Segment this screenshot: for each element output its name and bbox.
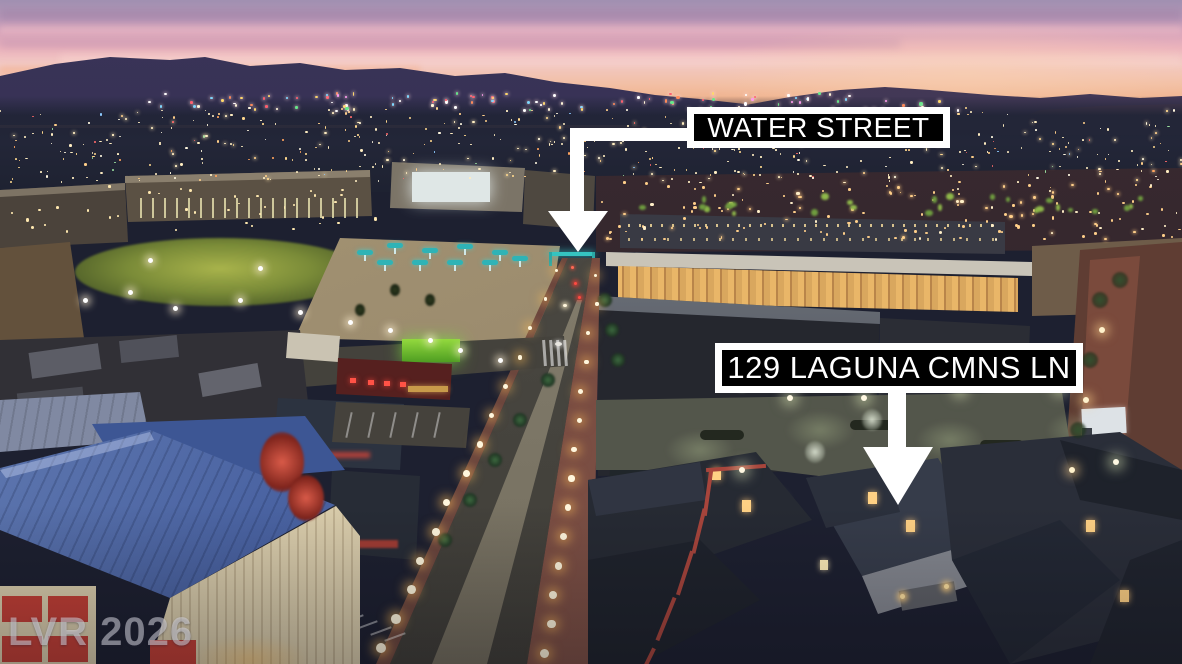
distant-light — [242, 117, 244, 119]
distant-light — [84, 163, 87, 165]
strip-light — [193, 105, 196, 108]
distant-light — [1068, 174, 1070, 175]
distant-light — [69, 144, 72, 147]
distant-light — [1036, 177, 1039, 179]
distant-light — [1108, 154, 1109, 156]
distant-light — [734, 149, 735, 151]
distant-light — [546, 117, 548, 119]
apartment-window — [998, 230, 1001, 232]
apartment-window — [1096, 224, 1098, 227]
distant-light — [76, 153, 78, 154]
distant-light — [318, 168, 320, 170]
civic-window — [158, 193, 160, 195]
distant-light — [940, 154, 942, 156]
distant-light — [1059, 148, 1060, 150]
distant-light — [472, 121, 474, 123]
civic-window — [340, 194, 343, 196]
distant-light — [174, 177, 176, 179]
path-lamp — [428, 338, 433, 343]
distant-light — [633, 167, 635, 168]
strip-light — [791, 101, 793, 103]
distant-light — [860, 160, 862, 162]
strip-light — [505, 93, 508, 96]
apartment-window — [1111, 219, 1113, 222]
porch-light — [900, 594, 905, 599]
apartment-window — [699, 227, 701, 229]
strip-light — [807, 97, 809, 100]
distant-light — [905, 149, 907, 151]
street-lamp — [568, 475, 574, 481]
parking-lamp — [739, 467, 745, 473]
apartment-window — [1082, 235, 1085, 238]
distant-light — [172, 121, 174, 123]
distant-light — [444, 123, 445, 124]
distant-light — [375, 128, 377, 131]
palm-tree — [390, 284, 400, 296]
red-window — [384, 381, 390, 386]
strip-light — [431, 104, 434, 106]
lit-tree-glow — [1034, 208, 1039, 212]
distant-light — [997, 151, 998, 152]
lit-tree-glow — [811, 209, 818, 216]
distant-light — [112, 134, 113, 135]
street-label-text: WATER STREET — [707, 112, 929, 144]
distant-light — [270, 179, 271, 180]
apartment-window — [902, 236, 905, 239]
apartment-window — [962, 225, 965, 228]
distant-light — [563, 137, 565, 139]
strip-light — [315, 96, 318, 99]
strip-light — [885, 100, 887, 102]
strip-light — [345, 107, 348, 110]
distant-light — [671, 178, 673, 180]
distant-light — [409, 117, 411, 119]
distant-light — [1039, 138, 1041, 140]
strip-light — [845, 98, 847, 101]
plaza-canopy-post — [489, 265, 491, 271]
civic-window — [334, 201, 337, 203]
strip-light — [296, 97, 298, 99]
plaza-canopy-post — [429, 253, 431, 259]
apartment-window — [650, 203, 653, 206]
distant-light — [710, 174, 711, 176]
path-lamp — [128, 290, 133, 295]
distant-light — [662, 180, 664, 181]
distant-light — [0, 110, 1, 112]
apartment-window — [699, 182, 702, 184]
distant-light — [926, 148, 927, 150]
lit-tree-glow — [821, 193, 828, 200]
distant-light — [1166, 110, 1167, 112]
distant-light — [737, 171, 739, 173]
strip-light — [399, 100, 401, 102]
apartment-window — [847, 222, 850, 224]
distant-light — [72, 177, 73, 178]
strip-light — [745, 94, 747, 96]
distant-light — [121, 115, 123, 117]
lit-tree-glow — [946, 193, 954, 200]
apartment-window — [957, 188, 959, 190]
distant-light — [436, 107, 438, 109]
apartment-window — [804, 230, 806, 232]
distant-light — [799, 152, 800, 153]
distant-light — [626, 109, 628, 111]
distant-light — [162, 117, 163, 119]
property-label-text: 129 LAGUNA CMNS LN — [727, 350, 1070, 386]
street-arrow-head-icon — [548, 211, 608, 252]
plaza-canopy-post — [464, 249, 466, 255]
red-window — [400, 382, 406, 387]
distant-light — [1017, 181, 1018, 183]
apartment-window — [985, 207, 988, 209]
apartment-window — [671, 227, 673, 229]
photo-layers — [0, 0, 1182, 664]
parking-lamp — [1113, 459, 1119, 465]
distant-light — [360, 149, 363, 151]
distant-light — [1180, 159, 1182, 161]
lit-tree-glow — [1129, 204, 1133, 210]
distant-light — [478, 168, 480, 170]
path-lamp — [83, 298, 88, 303]
street-lamp — [503, 384, 508, 389]
distant-light — [947, 169, 948, 170]
street-lamp — [432, 528, 440, 536]
civic-window — [56, 206, 59, 209]
apartment-window — [793, 211, 796, 213]
distant-light — [348, 111, 349, 113]
distant-light — [812, 177, 814, 178]
distant-light — [649, 158, 652, 161]
apartment-window — [1012, 204, 1014, 207]
strip-light — [670, 101, 673, 104]
garage-light-row — [628, 224, 998, 227]
distant-light — [759, 174, 761, 176]
distant-light — [201, 158, 203, 159]
distant-light — [61, 181, 62, 183]
strip-light — [491, 100, 494, 102]
apartment-window — [737, 188, 740, 190]
stall-line — [370, 626, 391, 635]
strip-light — [527, 101, 530, 104]
lit-window — [1086, 520, 1095, 532]
distant-light — [459, 113, 461, 115]
apartment-window — [855, 220, 858, 223]
lit-tree-glow — [1006, 197, 1010, 202]
distant-light — [512, 175, 514, 177]
strip-light — [454, 106, 457, 108]
distant-light — [438, 132, 440, 133]
strip-light — [295, 106, 297, 109]
strip-light — [561, 102, 563, 105]
street-lamp — [555, 269, 558, 272]
strip-light — [744, 102, 747, 105]
civic-window — [264, 206, 266, 208]
water-street-arch — [549, 252, 595, 256]
distant-light — [324, 132, 327, 134]
distant-light — [355, 125, 357, 127]
distant-light — [554, 115, 555, 117]
car-tail-light — [571, 266, 574, 269]
civic-window — [189, 189, 192, 192]
apartment-window — [683, 206, 685, 209]
palm-tree — [425, 294, 435, 306]
strip-light — [795, 97, 797, 100]
apartment-window — [663, 238, 666, 240]
distant-light — [975, 166, 976, 167]
distant-light — [559, 126, 561, 128]
distant-light — [230, 143, 232, 145]
strip-light — [938, 100, 940, 102]
sidewalk-tree — [1070, 422, 1086, 438]
distant-light — [962, 164, 964, 165]
distant-light — [159, 142, 161, 144]
distant-light — [318, 175, 319, 176]
distant-light — [494, 134, 495, 136]
distant-light — [406, 172, 407, 174]
distant-light — [175, 165, 176, 167]
apartment-window — [965, 219, 967, 222]
distant-light — [180, 163, 182, 165]
car — [555, 342, 562, 346]
street-arrow-vertical — [570, 128, 584, 214]
distant-light — [1137, 164, 1138, 166]
distant-light — [217, 140, 219, 142]
distant-light — [752, 154, 754, 156]
garage-light-row — [628, 238, 998, 241]
distant-light — [233, 144, 234, 146]
distant-light — [1152, 170, 1154, 172]
distant-light — [173, 116, 175, 119]
apartment-window — [643, 226, 645, 229]
distant-light — [1003, 124, 1004, 126]
apartment-window — [897, 186, 900, 189]
distant-light — [992, 165, 993, 167]
distant-light — [210, 174, 212, 176]
watermark: LVR 2026 — [8, 610, 193, 655]
distant-light — [460, 123, 462, 125]
distant-light — [155, 173, 157, 175]
distant-light — [425, 128, 427, 130]
stage-screen — [412, 172, 490, 202]
strip-light — [263, 97, 265, 99]
property-arrow-vertical — [888, 391, 906, 449]
porch-light — [944, 584, 949, 589]
distant-light — [957, 113, 959, 114]
plaza-canopy-post — [519, 261, 521, 267]
distant-light — [332, 112, 334, 114]
street-arrow-horizontal — [570, 128, 688, 141]
street-tree — [605, 323, 619, 337]
apartment-window — [1178, 229, 1181, 231]
distant-light — [1166, 170, 1168, 172]
strip-light — [326, 94, 328, 96]
distant-light — [305, 131, 307, 133]
sign-strip — [408, 386, 448, 392]
distant-light — [315, 147, 317, 148]
strip-light — [523, 109, 526, 112]
distant-light — [92, 152, 93, 154]
distant-light — [325, 126, 326, 128]
distant-light — [625, 148, 626, 150]
distant-light — [991, 136, 993, 138]
distant-light — [112, 169, 114, 171]
car-headlight — [563, 304, 567, 307]
civic-window — [337, 222, 339, 224]
distant-light — [1107, 128, 1109, 130]
apartment-window — [1104, 238, 1107, 240]
apartment-window — [1049, 190, 1052, 192]
distant-light — [888, 176, 889, 178]
distant-light — [42, 131, 43, 133]
strip-light — [445, 100, 448, 103]
lit-window — [906, 520, 915, 532]
aerial-photo: WATER STREET 129 LAGUNA CMNS LN LVR 2026 — [0, 0, 1182, 664]
distant-light — [538, 138, 539, 140]
street-lamp — [549, 591, 557, 599]
distant-light — [100, 155, 102, 157]
strip-light — [712, 92, 714, 95]
strip-light — [540, 104, 542, 106]
distant-light — [475, 163, 477, 164]
distant-light — [836, 171, 838, 173]
apartment-window — [667, 185, 670, 188]
distant-light — [1151, 164, 1152, 165]
strip-light — [197, 105, 200, 107]
street-lamp — [518, 355, 523, 360]
strip-light — [432, 101, 434, 103]
distant-light — [248, 107, 250, 108]
street-label-box: WATER STREET — [694, 114, 943, 141]
path-lamp — [238, 298, 243, 303]
distant-light — [941, 167, 943, 169]
cloud-streak — [0, 10, 1182, 20]
distant-light — [634, 122, 635, 124]
street-lamp — [376, 643, 386, 653]
distant-light — [714, 171, 717, 173]
distant-light — [19, 160, 20, 162]
distant-light — [797, 159, 799, 161]
distant-light — [172, 153, 174, 155]
lit-window — [1120, 590, 1129, 602]
sidewalk-tree — [1082, 352, 1098, 368]
street-lamp — [560, 533, 567, 540]
apartment-window — [1141, 228, 1144, 230]
strip-light — [335, 110, 338, 112]
street-tree — [488, 453, 502, 467]
civic-window — [44, 224, 46, 226]
path-lamp — [173, 306, 178, 311]
strip-light — [543, 102, 545, 105]
civic-window — [31, 226, 34, 229]
apartment-window — [1161, 208, 1163, 211]
distant-light — [359, 136, 360, 138]
distant-light — [430, 140, 432, 142]
white-lit-tree — [862, 409, 882, 431]
distant-light — [627, 125, 629, 127]
path-lamp — [148, 258, 153, 263]
distant-light — [612, 143, 614, 145]
distant-light — [620, 142, 622, 144]
distant-light — [282, 139, 284, 141]
distant-light — [215, 175, 217, 177]
distant-light — [305, 153, 307, 155]
apartment-window — [1071, 184, 1074, 186]
civic-window — [148, 191, 151, 194]
lit-tree-glow — [1092, 209, 1097, 214]
strip-light — [754, 96, 756, 98]
distant-light — [285, 157, 286, 159]
distant-light — [1136, 179, 1137, 181]
strip-light — [529, 109, 531, 111]
parking-lamp — [787, 395, 793, 401]
civic-window — [175, 229, 177, 232]
strip-light — [190, 101, 193, 103]
street-tree — [463, 493, 477, 507]
distant-light — [806, 160, 807, 161]
apartment-window — [957, 204, 959, 206]
street-lamp — [547, 620, 556, 629]
strip-light — [799, 101, 801, 104]
apartment-window — [986, 220, 988, 223]
apartment-window — [848, 188, 851, 191]
lit-tree-glow — [1046, 198, 1054, 203]
distant-light — [1155, 132, 1157, 134]
apartment-window — [995, 238, 997, 240]
apartment-window — [1001, 231, 1003, 233]
street-lamp — [540, 649, 549, 658]
civic-arcade-lights — [140, 198, 362, 218]
landscape-island — [700, 430, 744, 440]
civic-window — [26, 218, 29, 221]
distant-light — [230, 114, 233, 115]
distant-light — [753, 174, 755, 176]
distant-light — [197, 142, 199, 144]
distant-light — [217, 116, 219, 118]
distant-light — [554, 141, 555, 142]
distant-light — [458, 127, 460, 129]
strip-light — [702, 99, 704, 101]
street-label: WATER STREET — [687, 107, 950, 148]
civic-window — [11, 212, 13, 214]
palm-tree — [355, 304, 365, 316]
distant-light — [225, 115, 227, 117]
apartment-window — [721, 210, 723, 212]
street-tree — [598, 293, 612, 307]
street-tree — [611, 353, 625, 367]
apartment-window — [1009, 215, 1012, 218]
distant-light — [655, 164, 657, 165]
apartment-window — [1107, 188, 1109, 190]
distant-light — [370, 116, 371, 118]
path-lamp — [258, 266, 263, 271]
distant-light — [506, 174, 508, 176]
distant-light — [1086, 167, 1088, 169]
street-lamp — [578, 389, 583, 394]
civic-window — [108, 185, 110, 188]
apartment-window — [601, 201, 603, 203]
distant-light — [1146, 122, 1147, 124]
apartment-window — [1021, 214, 1024, 217]
street-lamp — [594, 274, 597, 277]
street-lamp — [595, 302, 598, 305]
civic-window — [194, 211, 196, 213]
distant-light — [984, 142, 986, 145]
street-lamp — [391, 614, 400, 623]
plaza-canopy-post — [364, 255, 366, 261]
apartment-window — [691, 210, 693, 213]
distant-light — [247, 130, 249, 131]
street-tree — [541, 373, 555, 387]
